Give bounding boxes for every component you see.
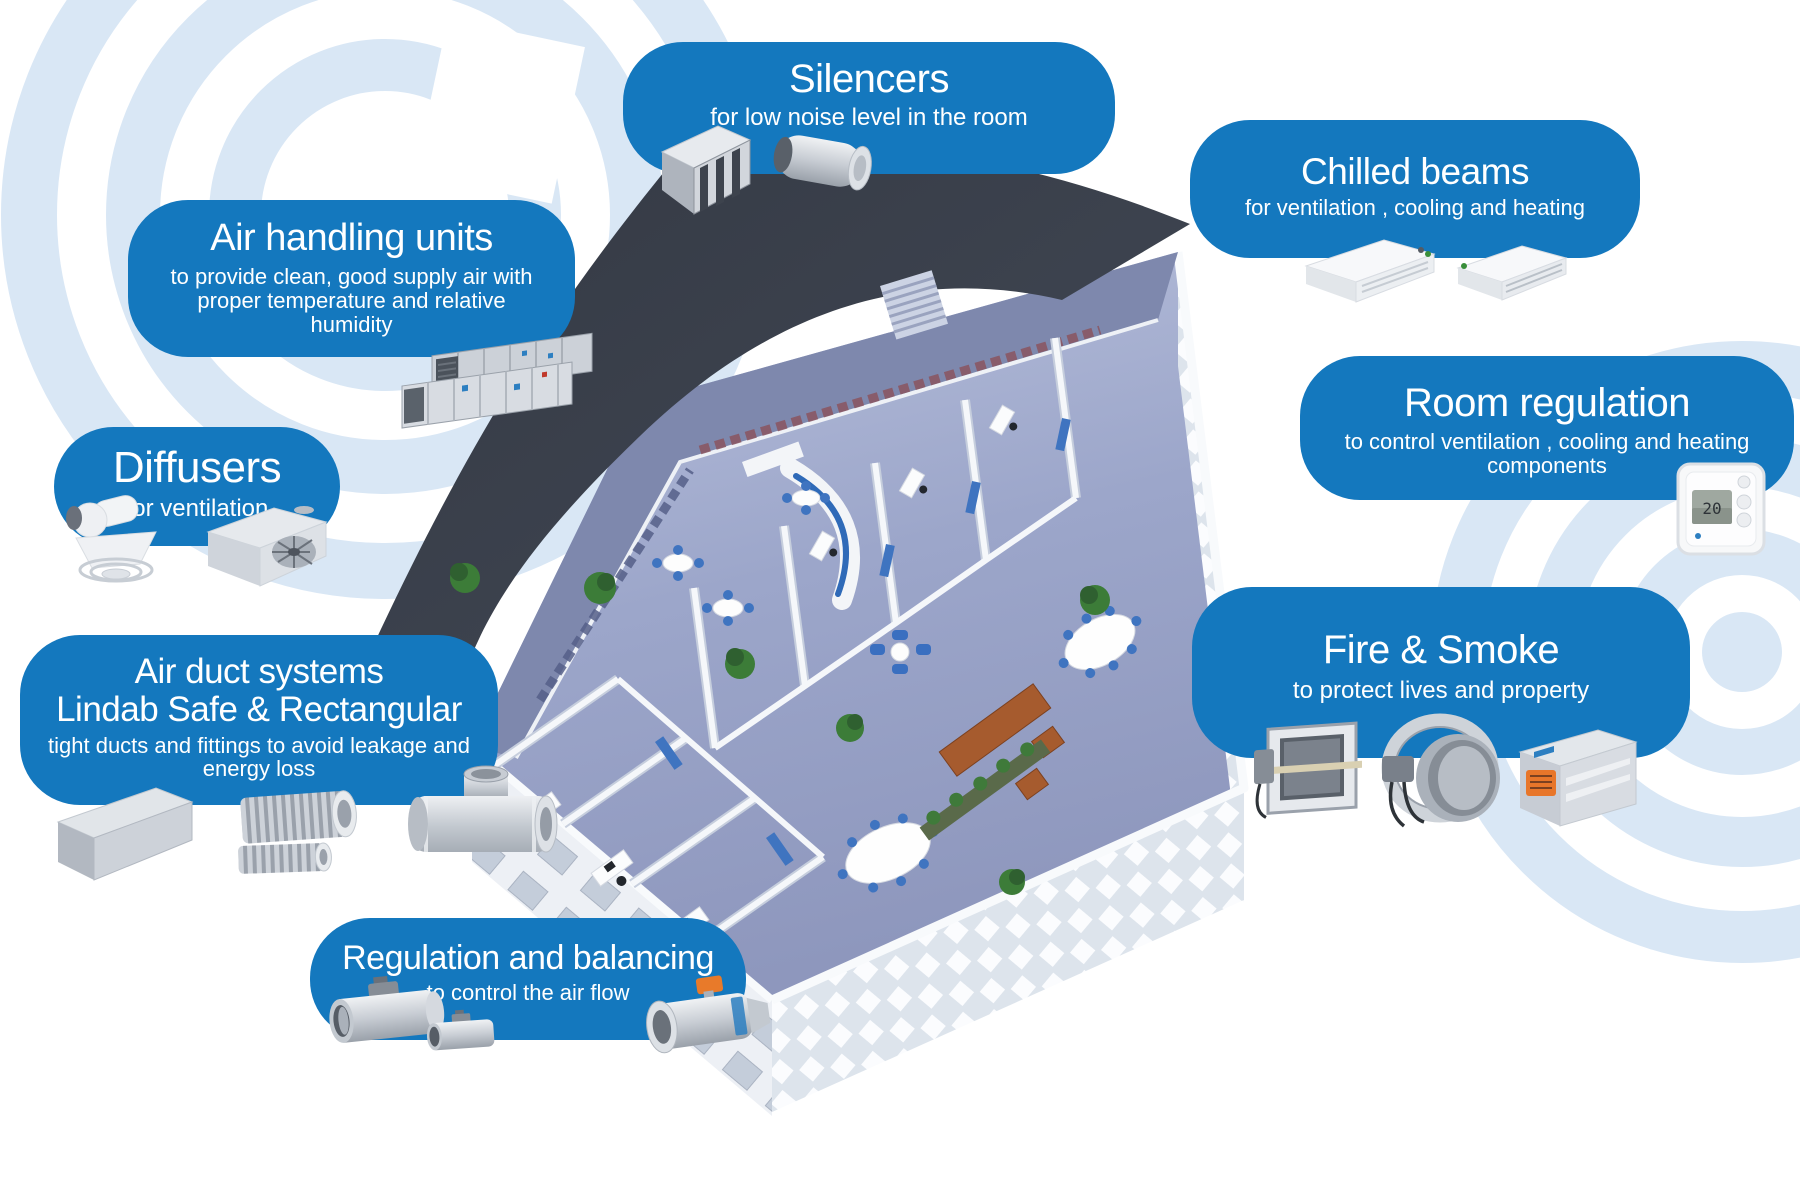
diffusers-title: Diffusers <box>54 444 340 492</box>
infographic-canvas: Silencers for low noise level in the roo… <box>0 0 1800 1200</box>
fire-smoke-subtitle: to protect lives and property <box>1192 678 1690 704</box>
air-handling-units-subtitle: to provide clean, good supply air with p… <box>156 265 547 336</box>
swirl-notch <box>415 18 585 204</box>
regulation-subtitle: to control the air flow <box>310 981 746 1005</box>
callout-fire-and-smoke: Fire & Smoke to protect lives and proper… <box>1192 587 1690 758</box>
regulation-title: Regulation and balancing <box>310 940 746 977</box>
chilled-beams-subtitle: for ventilation , cooling and heating <box>1190 196 1640 220</box>
callout-room-regulation: Room regulation to control ventilation ,… <box>1300 356 1794 500</box>
callout-air-handling-units: Air handling units to provide clean, goo… <box>128 200 575 357</box>
callout-air-duct-systems: Air duct systems Lindab Safe & Rectangul… <box>20 635 498 805</box>
room-regulation-subtitle: to control ventilation , cooling and hea… <box>1330 430 1764 478</box>
callout-diffusers: Diffusers for ventilation <box>54 427 340 546</box>
silencers-subtitle: for low noise level in the room <box>623 105 1115 131</box>
air-duct-title-line1: Air duct systems <box>30 653 488 691</box>
callout-chilled-beams: Chilled beams for ventilation , cooling … <box>1190 120 1640 258</box>
room-regulation-title: Room regulation <box>1330 382 1764 425</box>
air-duct-title-line2: Lindab Safe & Rectangular <box>30 691 488 729</box>
fire-smoke-title: Fire & Smoke <box>1192 629 1690 672</box>
callout-silencers: Silencers for low noise level in the roo… <box>623 42 1115 174</box>
air-duct-subtitle: tight ducts and fittings to avoid leakag… <box>30 734 488 782</box>
diffusers-subtitle: for ventilation <box>54 496 340 522</box>
silencers-title: Silencers <box>623 58 1115 101</box>
callout-regulation-and-balancing: Regulation and balancing to control the … <box>310 918 746 1040</box>
air-handling-units-title: Air handling units <box>156 218 547 259</box>
chilled-beams-title: Chilled beams <box>1190 152 1640 192</box>
